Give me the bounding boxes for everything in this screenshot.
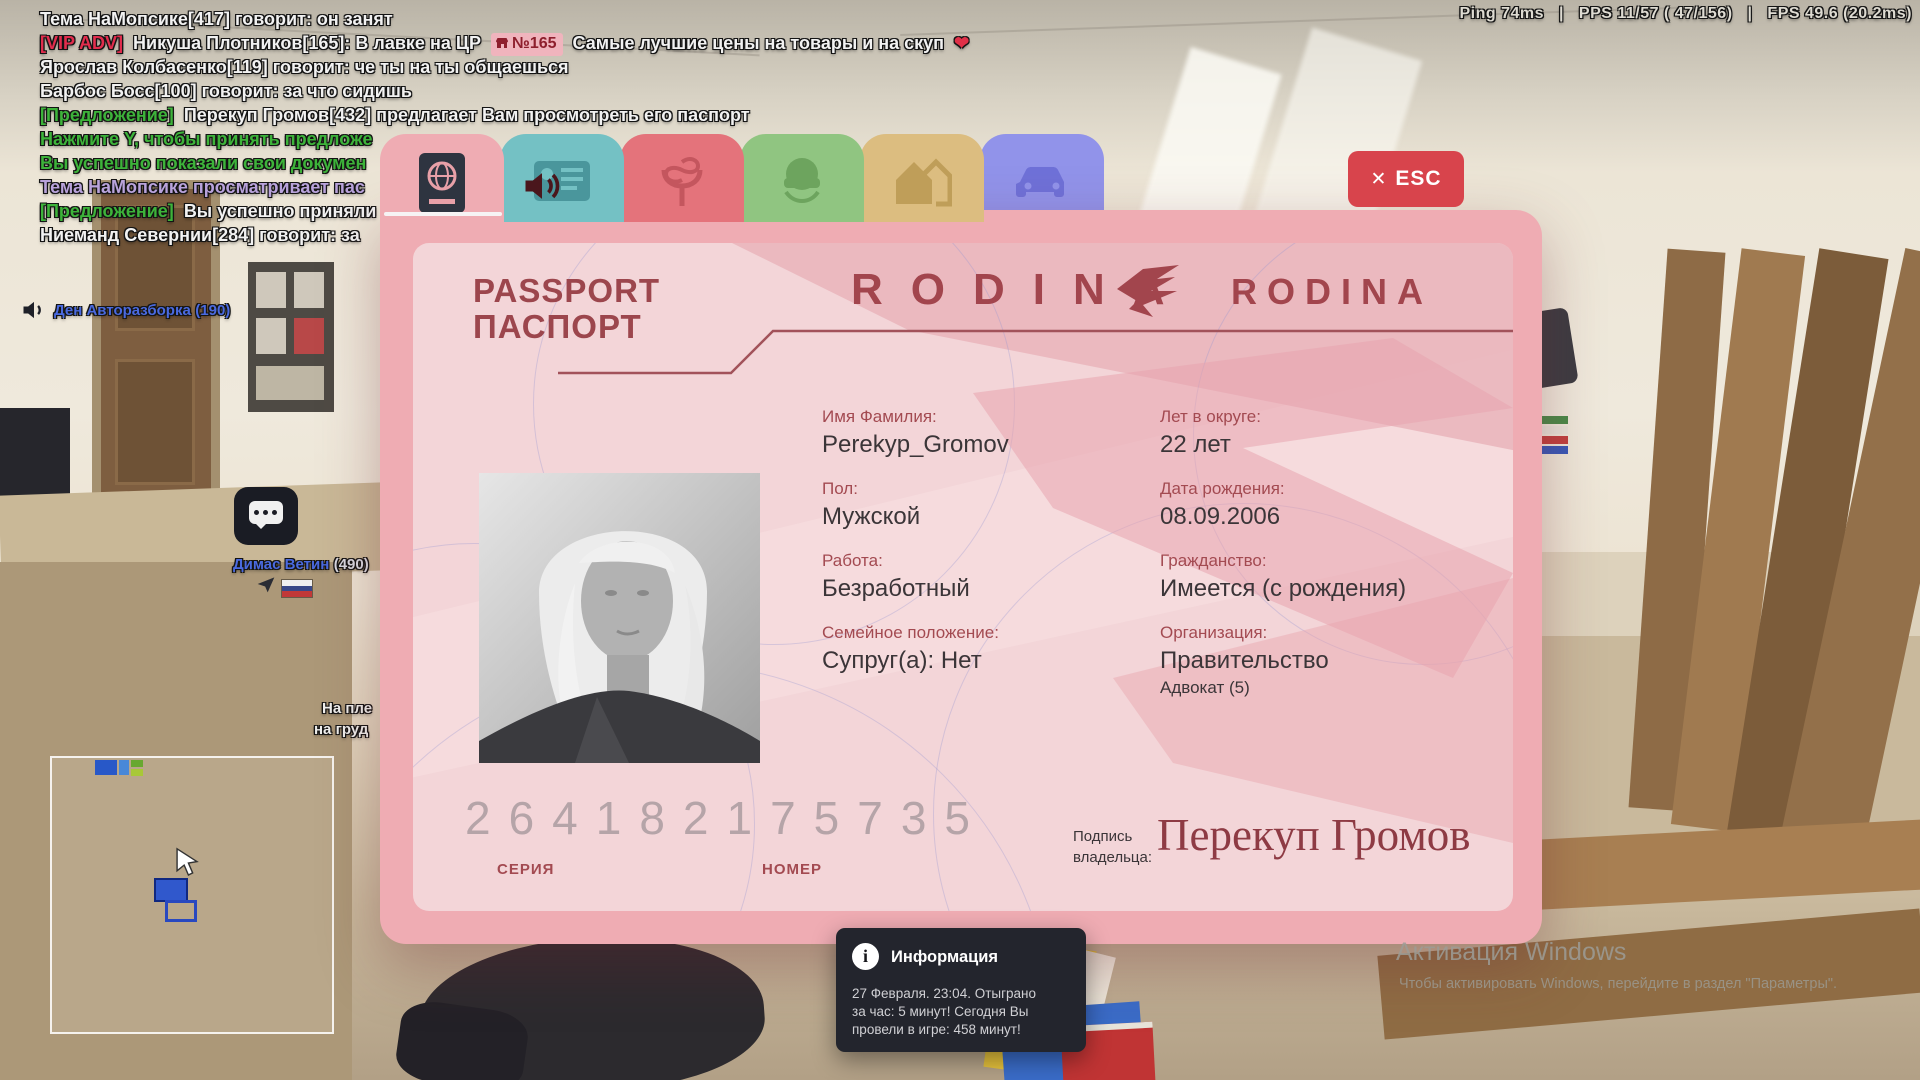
chat-line: Барбос Босс[100] говорит: за что сидишь [40, 80, 417, 102]
info-title: Информация [891, 948, 998, 967]
minimap-vehicle-blip [165, 900, 197, 922]
esc-close-button[interactable]: ✕ ESC [1348, 151, 1464, 207]
chat-text: Никуша Плотников[165]: В лавке на ЦР [133, 33, 481, 53]
passport-card: PASSPORT ПАСПОРТ RODINA RODINA [413, 243, 1513, 911]
chat-text: Тема НаМопсике[417] говорит: он занят [40, 9, 393, 29]
chat-line: [VIP ADV] Никуша Плотников[165]: В лавке… [40, 32, 974, 56]
minimap-blip-green [131, 769, 143, 776]
field-label: Лет в округе: [1160, 407, 1261, 427]
passport-title-ru: ПАСПОРТ [473, 308, 642, 345]
field-value: 22 лет [1160, 431, 1261, 459]
field-value-secondary: Адвокат (5) [1160, 678, 1329, 698]
player-id: (490) [334, 556, 369, 573]
field-marital: Семейное положение: Супруг(а): Нет [822, 623, 999, 675]
chat-line: Ярослав Колбасенко[119] говорит: че ты н… [40, 56, 574, 78]
tab-property[interactable] [860, 134, 984, 222]
offer-tag: [Предложение] [40, 105, 174, 125]
bubble-dot [272, 510, 277, 515]
windows-activation-subtitle: Чтобы активировать Windows, перейдите в … [1399, 976, 1837, 992]
bubble-dot [254, 510, 259, 515]
chat-text: Самые лучшие цены на товары и на скуп [573, 33, 945, 53]
chat-line: Тема НаМопсике просматривает пас [40, 176, 370, 198]
field-value: Мужской [822, 503, 920, 531]
chat-text: Вы успешно приняли [184, 201, 377, 221]
field-citizenship: Гражданство: Имеется (с рождения) [1160, 551, 1406, 603]
minimap [50, 756, 334, 1034]
wall-posters [248, 262, 334, 412]
shop-icon [495, 36, 509, 50]
paper-plane-icon [256, 574, 276, 594]
chat-text: Барбос Босс[100] говорит: за что сидишь [40, 81, 412, 101]
chat-bubble-icon [234, 487, 298, 545]
country-flag-icon [282, 580, 312, 597]
field-years: Лет в округе: 22 лет [1160, 407, 1261, 459]
player-name-tag: Димас Ветин (490) [233, 556, 369, 574]
rodina-eagle-logo [1113, 261, 1183, 321]
field-birthdate: Дата рождения: 08.09.2006 [1160, 479, 1285, 531]
minimap-vehicle-blip [154, 878, 188, 902]
bubble-shape [249, 501, 283, 524]
voice-speaker-tag: Ден Авторазборка (190) [54, 302, 230, 320]
field-value: Имеется (с рождения) [1160, 575, 1406, 603]
field-value: Безработный [822, 575, 970, 603]
chat-line: [Предложение] Перекуп Громов[432] предла… [40, 104, 755, 126]
performance-stats: Ping 74ms | PPS 11/57 ( 47/156) | FPS 49… [1450, 5, 1913, 23]
chat-text: Вы успешно показали свои докумен [40, 153, 366, 173]
number-label: НОМЕР [762, 861, 822, 878]
medical-icon [656, 152, 708, 210]
door-panel [115, 359, 195, 485]
signature-label: Подпись владельца: [1073, 826, 1152, 868]
shop-number: №165 [512, 35, 557, 52]
brand-rodina-right: RODINA [1231, 271, 1433, 313]
minimap-cursor-icon [170, 846, 204, 880]
world-label: на груд [314, 721, 368, 738]
tab-vehicle[interactable] [980, 134, 1104, 222]
info-notification: i Информация 27 Февраля. 23:04. Отыграно… [836, 928, 1086, 1052]
fps-stat: FPS 49.6 (20.2ms) [1767, 5, 1912, 22]
minimap-blip-green [131, 760, 143, 767]
tab-medical[interactable] [620, 134, 744, 222]
shop-badge: №165 [491, 33, 563, 56]
info-icon: i [852, 943, 879, 970]
passport-title: PASSPORT ПАСПОРТ [473, 273, 660, 345]
minimap-blip-blue [95, 760, 117, 775]
field-label: Гражданство: [1160, 551, 1406, 571]
passport-icon [418, 152, 466, 214]
speaker-count: (190) [195, 302, 230, 319]
info-body: 27 Февраля. 23:04. Отыграно за час: 5 ми… [852, 985, 1036, 1039]
ping-stat: Ping 74ms [1460, 5, 1545, 22]
military-cap-icon [774, 152, 830, 208]
bubble-tail [254, 522, 268, 536]
chat-line: [Предложение] Вы успешно приняли [40, 200, 381, 222]
chat-text: Тема НаМопсике просматривает пас [40, 177, 365, 197]
info-body-line: за час: 5 минут! Сегодня Вы [852, 1004, 1028, 1019]
minimap-blip-blue [119, 760, 129, 775]
info-body-line: провели в игре: 458 минут! [852, 1022, 1021, 1037]
world-label: На пле [322, 700, 372, 717]
chat-line: Ниеманд Севернии[284] говорит: за [40, 224, 365, 246]
passport-title-en: PASSPORT [473, 272, 660, 309]
passport-photo [479, 473, 760, 763]
speaker-name: Ден Авторазборка [54, 302, 191, 319]
vip-tag: [VIP ADV] [40, 33, 123, 53]
stats-separator: | [1559, 5, 1564, 22]
speaker-icon [20, 296, 48, 324]
field-label: Имя Фамилия: [822, 407, 1009, 427]
active-tab-indicator [384, 212, 502, 216]
poster-photo [256, 272, 286, 308]
stats-separator: | [1747, 5, 1752, 22]
tab-passport[interactable] [380, 134, 504, 222]
field-gender: Пол: Мужской [822, 479, 920, 531]
field-value: Правительство [1160, 647, 1329, 675]
field-job: Работа: Безработный [822, 551, 970, 603]
info-body-line: 27 Февраля. 23:04. Отыграно [852, 986, 1036, 1001]
heart-icon: ❤ [954, 33, 969, 53]
series-label: СЕРИЯ [497, 861, 554, 878]
field-label: Организация: [1160, 623, 1329, 643]
field-label: Дата рождения: [1160, 479, 1285, 499]
close-icon: ✕ [1370, 168, 1386, 191]
esc-label: ESC [1395, 167, 1441, 191]
game-screen: Ping 74ms | PPS 11/57 ( 47/156) | FPS 49… [0, 0, 1920, 1080]
owner-signature: Перекуп Громов [1157, 809, 1471, 861]
car-icon [1012, 156, 1072, 206]
field-organization: Организация: Правительство Адвокат (5) [1160, 623, 1329, 698]
house-icon [892, 152, 952, 208]
field-value: Perekyp_Gromov [822, 431, 1009, 459]
bubble-dot [263, 510, 268, 515]
chat-line: Тема НаМопсике[417] говорит: он занят [40, 8, 398, 30]
passport-serial-number: 264182175735 [465, 791, 988, 845]
field-label: Пол: [822, 479, 920, 499]
flag-stripe [282, 591, 312, 597]
player-name: Димас Ветин [233, 556, 329, 573]
poster-photo [294, 272, 324, 308]
chat-line: Вы успешно показали свои докумен [40, 152, 371, 174]
pps-stat: PPS 11/57 ( 47/156) [1579, 5, 1733, 22]
chat-text: Перекуп Громов[432] предлагает Вам просм… [184, 105, 750, 125]
field-name: Имя Фамилия: Perekyp_Gromov [822, 407, 1009, 459]
poster-photo [294, 318, 324, 354]
poster-photo [256, 318, 286, 354]
tab-military[interactable] [740, 134, 864, 222]
field-label: Работа: [822, 551, 970, 571]
offer-tag: [Предложение] [40, 201, 174, 221]
chat-text: Ниеманд Севернии[284] говорит: за [40, 225, 360, 245]
chat-line: Нажмите Y, чтобы принять предложе [40, 128, 378, 150]
windows-activation-watermark: Активация Windows [1396, 938, 1626, 967]
field-value: Супруг(а): Нет [822, 647, 999, 675]
field-label: Семейное положение: [822, 623, 999, 643]
signature-label-line1: Подпись [1073, 828, 1132, 845]
chat-text: Ярослав Колбасенко[119] говорит: че ты н… [40, 57, 569, 77]
poster-sign [256, 366, 324, 400]
voice-active-icon [520, 164, 564, 208]
signature-label-line2: владельца: [1073, 849, 1152, 866]
chat-text: Нажмите Y, чтобы принять предложе [40, 129, 373, 149]
field-value: 08.09.2006 [1160, 503, 1285, 531]
